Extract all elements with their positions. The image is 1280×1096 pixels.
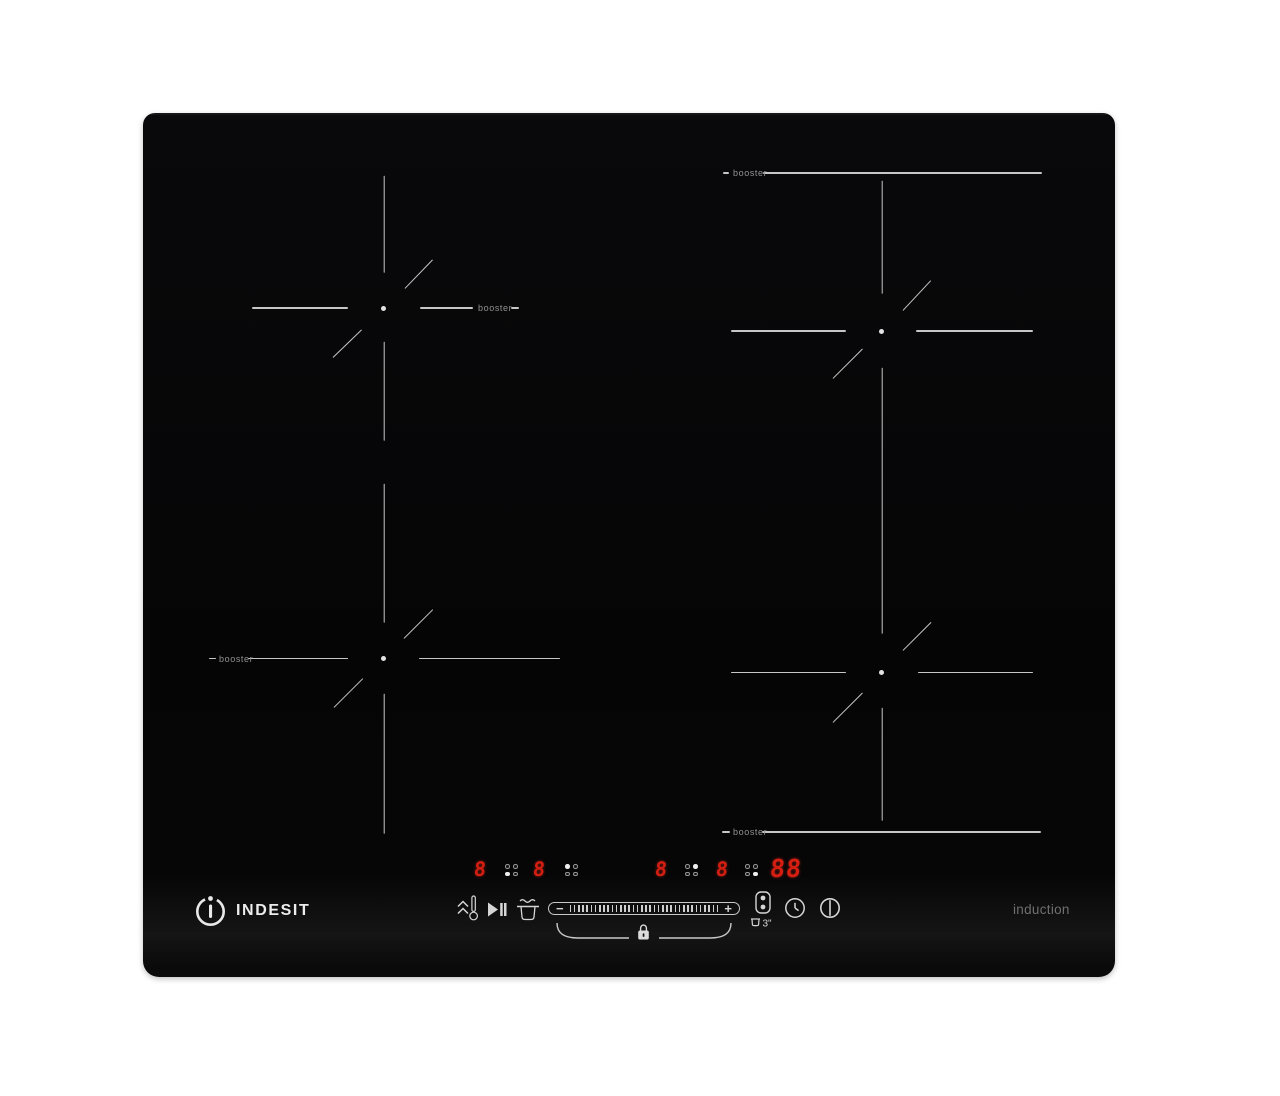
zone-center-dot — [381, 656, 386, 661]
slider-plus[interactable]: + — [724, 903, 732, 914]
svg-text:3": 3" — [763, 919, 773, 929]
zone-line — [383, 176, 384, 273]
induction-label: induction — [1013, 902, 1070, 917]
heat-level-icon[interactable] — [456, 894, 480, 929]
zone-line — [833, 349, 864, 380]
indesit-wordmark: INDESIT — [236, 902, 310, 920]
zone-line — [248, 658, 348, 659]
indesit-logo: INDESIT — [193, 893, 310, 928]
zone-line — [333, 330, 363, 359]
zone-line — [763, 172, 1042, 173]
zone-line — [404, 260, 433, 290]
zone-line — [383, 342, 384, 441]
zone-line — [731, 330, 846, 331]
zone-line — [404, 610, 434, 640]
zone-line — [722, 831, 730, 832]
zone-line — [723, 172, 729, 173]
zone-center-dot — [381, 306, 386, 311]
power-level-display: 8 — [532, 860, 546, 878]
zone-indicator-dots — [565, 864, 578, 876]
induction-hob: boosterboosterboosterbooster 8888 88 — [143, 113, 1115, 977]
power-level-display: 8 — [654, 860, 668, 878]
slider-ticks[interactable] — [570, 905, 719, 912]
slider-minus[interactable]: − — [556, 903, 564, 914]
booster-label: booster — [733, 168, 767, 178]
zone-indicator-dots — [505, 864, 518, 876]
zone-line — [209, 658, 216, 659]
zone-line — [918, 672, 1033, 673]
power-level-display: 8 — [473, 860, 487, 878]
zone-line — [383, 484, 384, 623]
zone-line — [420, 307, 473, 308]
zone-line — [334, 679, 364, 709]
zone-line — [762, 831, 1041, 832]
zone-line — [731, 672, 846, 673]
zone-line — [252, 307, 348, 308]
zone-center-dot — [879, 670, 884, 675]
bridge-zones-icon[interactable]: 3" — [749, 891, 779, 933]
zone-line — [902, 281, 931, 312]
booster-label: booster — [219, 654, 253, 664]
zone-indicator-dots — [745, 864, 758, 876]
power-level-display: 8 — [715, 860, 729, 878]
play-pause-icon[interactable] — [487, 900, 507, 924]
zone-line — [903, 623, 932, 652]
power-slider[interactable]: − + — [548, 902, 740, 915]
timer-display: 88 — [769, 858, 803, 879]
timer-clock-icon[interactable] — [784, 897, 806, 924]
cooking-zones-layer: boosterboosterboosterbooster — [143, 113, 1115, 977]
zone-line — [881, 368, 882, 634]
zone-line — [881, 181, 882, 294]
indesit-logo-mark — [193, 893, 228, 928]
zone-line — [916, 330, 1033, 331]
zone-line — [881, 708, 882, 821]
zone-center-dot — [879, 329, 884, 334]
melt-icon[interactable] — [516, 896, 540, 928]
booster-label: booster — [733, 827, 767, 837]
power-icon[interactable] — [819, 897, 841, 924]
zone-line — [419, 658, 560, 659]
zone-line — [383, 694, 384, 834]
child-lock-icon[interactable] — [636, 922, 651, 946]
zone-line — [833, 693, 864, 724]
zone-indicator-dots — [685, 864, 698, 876]
booster-label: booster — [478, 303, 512, 313]
